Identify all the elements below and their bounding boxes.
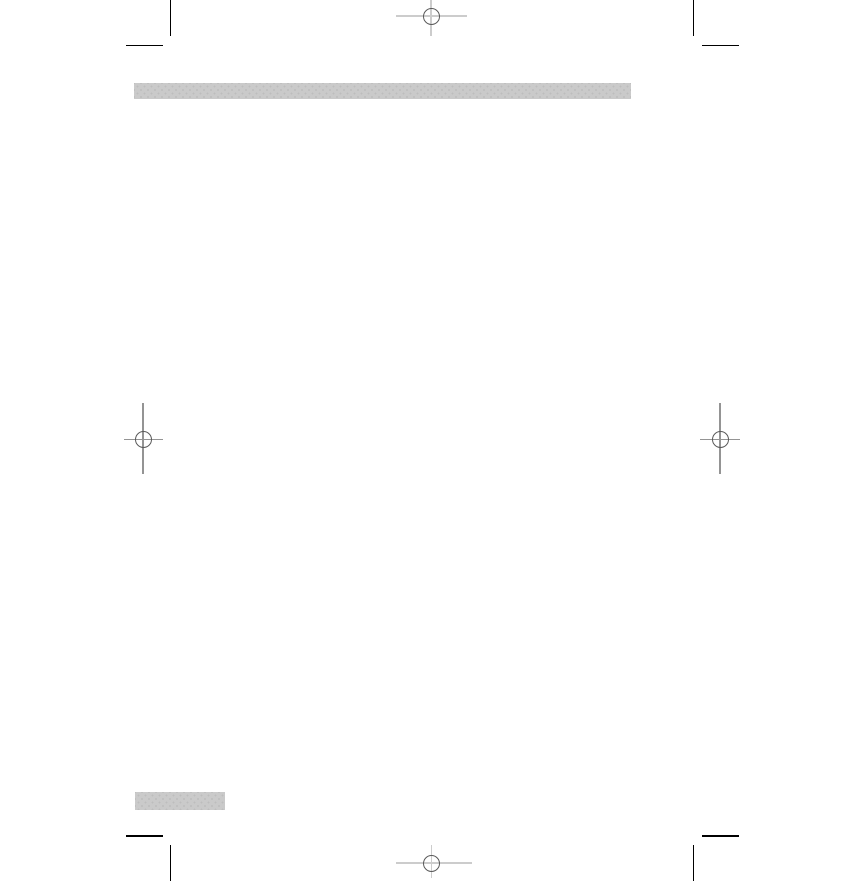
crop-mark-bottom-right-vertical-icon (693, 845, 695, 881)
header-placeholder-bar (134, 83, 631, 99)
footer-placeholder-bar (135, 792, 225, 810)
crop-mark-top-left-vertical-icon (170, 0, 172, 36)
print-proof-page (0, 0, 864, 881)
crop-mark-top-right-horizontal-icon (702, 45, 739, 47)
registration-circle (423, 855, 440, 872)
crop-mark-top-left-horizontal-icon (126, 45, 163, 47)
crop-mark-top-right-vertical-icon (693, 0, 695, 36)
crop-mark-bottom-left-vertical-icon (170, 845, 172, 881)
registration-circle (712, 431, 729, 448)
registration-circle (135, 431, 152, 448)
crop-mark-bottom-right-horizontal-icon (702, 835, 739, 837)
registration-circle (423, 8, 440, 25)
crop-mark-bottom-left-horizontal-icon (126, 835, 163, 837)
